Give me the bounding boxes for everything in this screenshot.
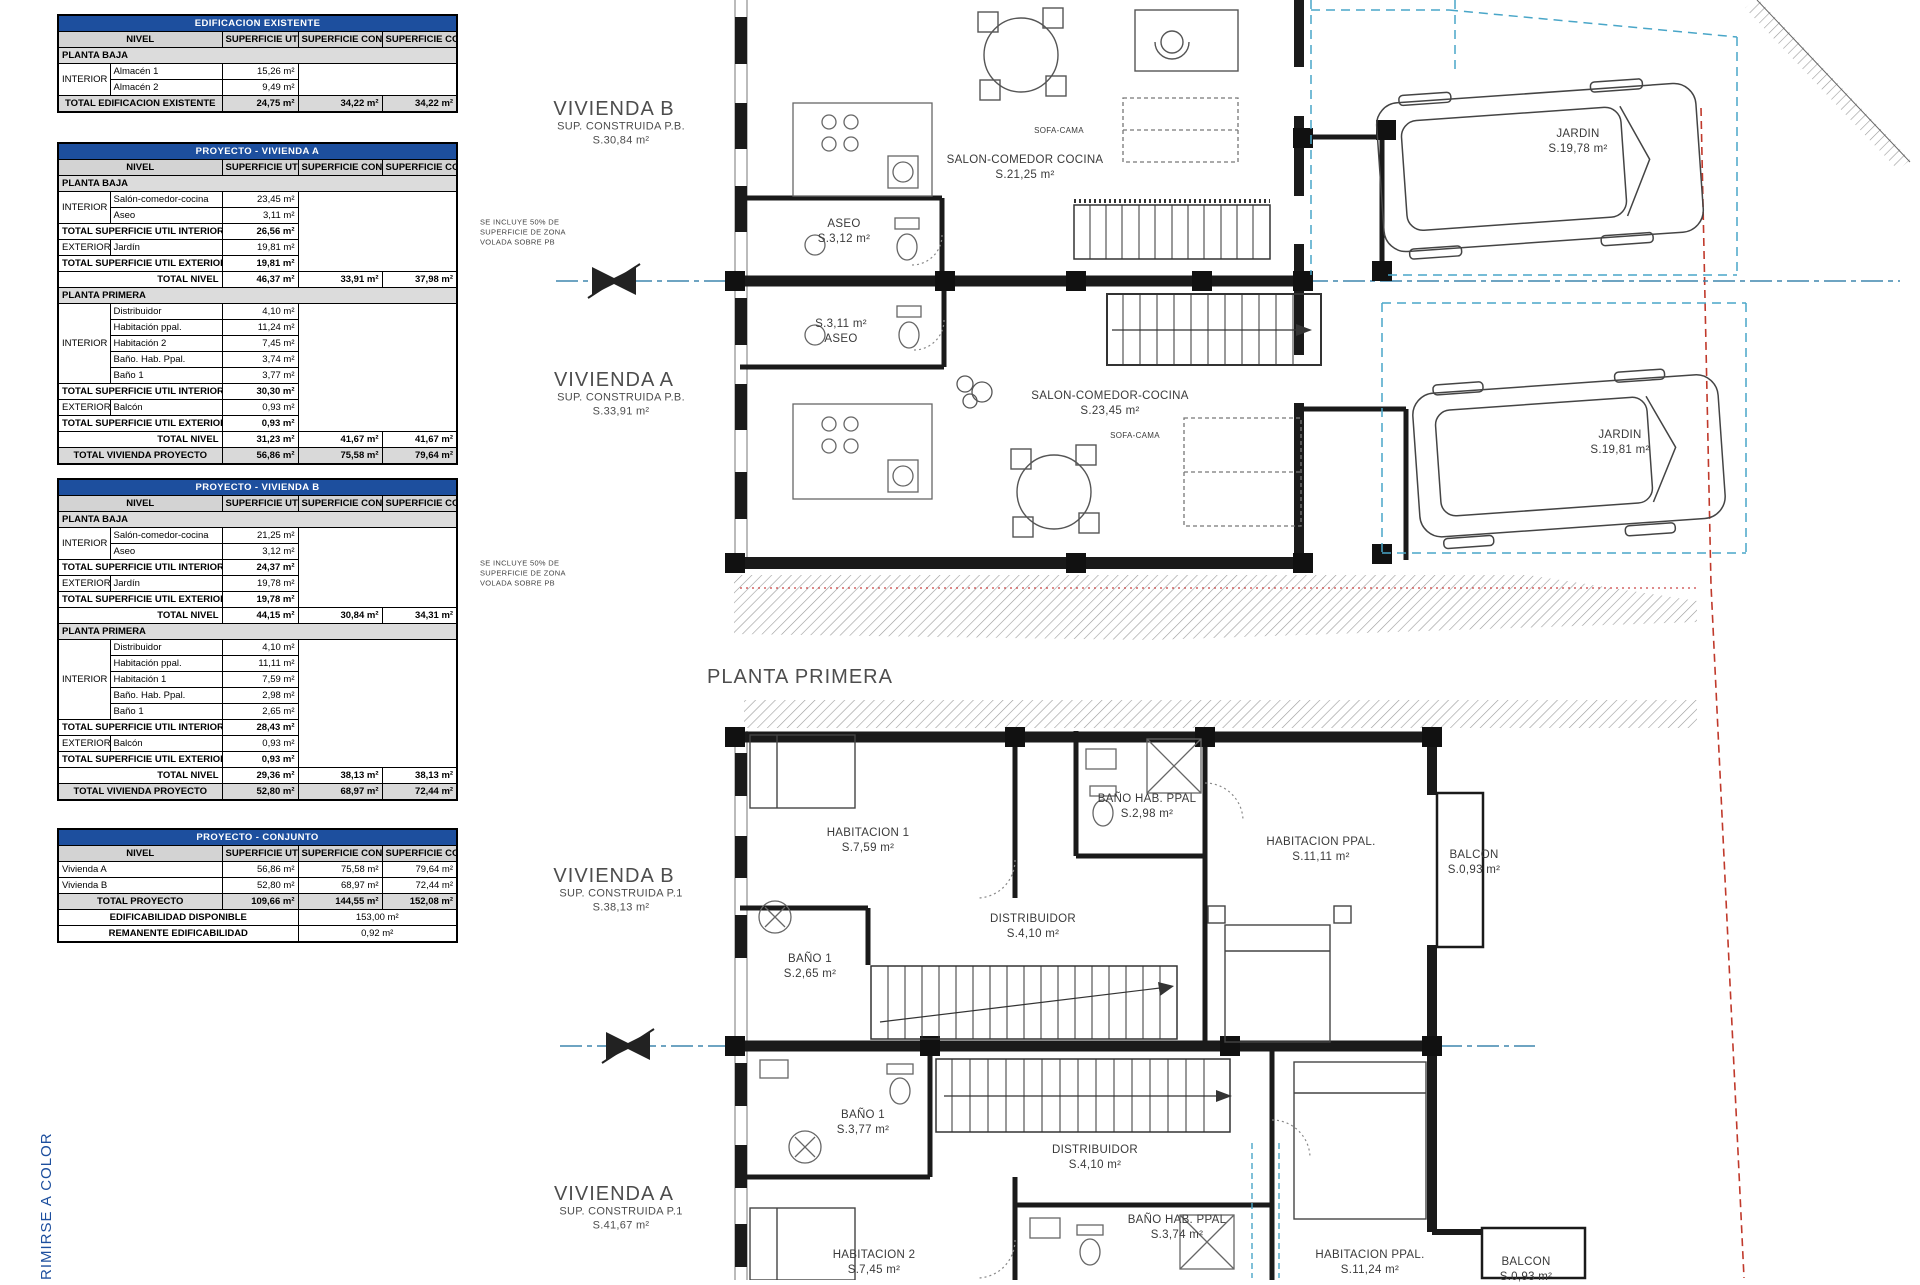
bed-icon [750,735,1426,1280]
section-cut-icon [588,264,640,298]
table-cell: TOTAL VIVIENDA PROYECTO [58,784,222,801]
kitchen-counter-icon [793,103,932,499]
table-cell: Vivienda A [58,862,222,878]
table-cell: TOTAL EDIFICACION EXISTENTE [58,96,222,113]
table-cell: 72,44 m² [382,878,457,894]
print-color-note: RIMIRSE A COLOR [38,1095,55,1280]
table-cell: 15,26 m² [222,64,298,80]
table-cell: TOTAL SUPERFICIE UTIL EXTERIOR [58,752,222,768]
table-cell: 29,36 m² [222,768,298,784]
section-cut-icon [602,1029,654,1063]
table-cell: EXTERIOR [58,240,110,256]
table-cell: Salón-comedor-cocina [110,528,222,544]
table-cell: Baño. Hab. Ppal. [110,688,222,704]
table-cell: 19,78 m² [222,592,298,608]
table-cell: Jardín [110,240,222,256]
table-cell: 4,10 m² [222,640,298,656]
table-cell: INTERIOR [58,304,110,384]
desk-icon [1135,10,1238,71]
table-cell: 4,10 m² [222,304,298,320]
table-cell: PLANTA BAJA [58,48,457,64]
table-cell: 21,25 m² [222,528,298,544]
table-cell: Baño 1 [110,368,222,384]
table-cell: Vivienda B [58,878,222,894]
table-cell: SUPERFICIE UTIL [222,32,298,48]
table-cell: 37,98 m² [382,272,457,288]
table-cell: 152,08 m² [382,894,457,910]
table-cell: TOTAL SUPERFICIE UTIL INTERIOR [58,384,222,400]
table-cell: 56,86 m² [222,862,298,878]
table-cell: TOTAL SUPERFICIE UTIL EXTERIOR [58,256,222,272]
table-cell: TOTAL NIVEL [58,768,222,784]
table-cell: 153,00 m² [298,910,457,926]
table-cell: TOTAL VIVIENDA PROYECTO [58,448,222,465]
person-icon [1155,31,1189,59]
table-cell: SUPERFICIE CONSTRUIDA [298,846,382,862]
table-cell: Almacén 2 [110,80,222,96]
table-cell: TOTAL NIVEL [58,608,222,624]
table-cell: SUPERFICIE UTIL [222,160,298,176]
table-cell: 2,98 m² [222,688,298,704]
table-cell: 23,45 m² [222,192,298,208]
table-cell: 30,84 m² [298,608,382,624]
table-cell: Balcón [110,736,222,752]
table-cell: TOTAL PROYECTO [58,894,222,910]
table-cell: SUPERFICIE CONSTRUIDA [298,32,382,48]
table-cell: PLANTA PRIMERA [58,624,457,640]
table-edificacion-existente: EDIFICACION EXISTENTENIVELSUPERFICIE UTI… [57,14,458,113]
table-cell: NIVEL [58,496,222,512]
table-cell: 0,92 m² [298,926,457,943]
plant-icon [957,376,992,408]
toilet-icon [760,749,1116,1265]
table-cell: 56,86 m² [222,448,298,465]
table-cell: 26,56 m² [222,224,298,240]
table-cell: 24,37 m² [222,560,298,576]
table-cell: 34,31 m² [382,608,457,624]
table-cell: 38,13 m² [382,768,457,784]
table-cell: REMANENTE EDIFICABILIDAD [58,926,298,943]
table-proyecto-conjunto: PROYECTO - CONJUNTONIVELSUPERFICIE UTILS… [57,828,458,943]
table-cell: 79,64 m² [382,862,457,878]
planta-primera-plan [725,727,1585,1280]
table-cell: INTERIOR [58,64,110,96]
table-cell: TOTAL NIVEL [58,272,222,288]
table-cell: 68,97 m² [298,878,382,894]
table-cell: TOTAL SUPERFICIE UTIL INTERIOR [58,720,222,736]
table-cell: Distribuidor [110,304,222,320]
table-proyecto-vivienda-b: PROYECTO - VIVIENDA BNIVELSUPERFICIE UTI… [57,478,458,801]
table-cell: SUPERFICIE CONSTRUIDA [298,160,382,176]
table-cell: 2,65 m² [222,704,298,720]
table-cell: 41,67 m² [382,432,457,448]
table-cell: PROYECTO - VIVIENDA A [58,143,457,160]
table-cell [298,64,457,96]
table-cell: 44,15 m² [222,608,298,624]
table-cell: 79,64 m² [382,448,457,465]
table-cell: 52,80 m² [222,784,298,801]
table-cell: 109,66 m² [222,894,298,910]
table-cell: TOTAL SUPERFICIE UTIL EXTERIOR [58,592,222,608]
section-cut-lines [556,281,1900,1046]
table-cell: 41,67 m² [298,432,382,448]
table-cell: INTERIOR [58,528,110,560]
table-cell: Distribuidor [110,640,222,656]
table-cell: PLANTA BAJA [58,176,457,192]
table-cell: 11,24 m² [222,320,298,336]
table-cell: EXTERIOR [58,736,110,752]
table-cell: EXTERIOR [58,400,110,416]
table-cell: 3,12 m² [222,544,298,560]
table-cell: Habitación 1 [110,672,222,688]
table-cell: EDIFICABILIDAD DISPONIBLE [58,910,298,926]
table-cell: NIVEL [58,846,222,862]
area-table: PROYECTO - VIVIENDA ANIVELSUPERFICIE UTI… [57,142,458,465]
table-cell: 3,11 m² [222,208,298,224]
table-cell: NIVEL [58,160,222,176]
table-cell: 144,55 m² [298,894,382,910]
table-cell: EDIFICACION EXISTENTE [58,15,457,32]
table-cell: 34,22 m² [298,96,382,113]
table-cell: 0,93 m² [222,752,298,768]
table-cell: 24,75 m² [222,96,298,113]
table-cell: 68,97 m² [298,784,382,801]
table-cell: Aseo [110,544,222,560]
table-cell: INTERIOR [58,640,110,720]
car-icon [1411,365,1728,550]
table-cell: 34,22 m² [382,96,457,113]
table-cell: SUPERFICIE UTIL [222,496,298,512]
table-cell: 75,58 m² [298,448,382,465]
table-cell: 19,78 m² [222,576,298,592]
table-cell: 0,93 m² [222,400,298,416]
table-cell: SUPERFICIE COMPUTABLE [382,160,457,176]
table-cell [298,640,457,768]
table-cell: 7,45 m² [222,336,298,352]
table-cell: 46,37 m² [222,272,298,288]
table-cell: 19,81 m² [222,256,298,272]
table-cell: Salón-comedor-cocina [110,192,222,208]
table-cell: 75,58 m² [298,862,382,878]
table-cell: PROYECTO - CONJUNTO [58,829,457,846]
table-cell: SUPERFICIE COMPUTABLE [382,32,457,48]
table-cell: Jardín [110,576,222,592]
car-icon [1375,75,1706,261]
table-cell: TOTAL NIVEL [58,432,222,448]
table-cell: 7,59 m² [222,672,298,688]
table-proyecto-vivienda-a: PROYECTO - VIVIENDA ANIVELSUPERFICIE UTI… [57,142,458,465]
table-cell [298,304,457,432]
table-cell: 3,77 m² [222,368,298,384]
table-cell [298,528,457,608]
table-cell: INTERIOR [58,192,110,224]
table-cell: Baño. Hab. Ppal. [110,352,222,368]
table-cell: TOTAL SUPERFICIE UTIL INTERIOR [58,224,222,240]
table-cell: TOTAL SUPERFICIE UTIL EXTERIOR [58,416,222,432]
table-cell: PROYECTO - VIVIENDA B [58,479,457,496]
table-cell: 3,74 m² [222,352,298,368]
sofa-bed-outline [1123,98,1301,526]
table-cell: 31,23 m² [222,432,298,448]
area-table: PROYECTO - VIVIENDA BNIVELSUPERFICIE UTI… [57,478,458,801]
area-table: EDIFICACION EXISTENTENIVELSUPERFICIE UTI… [57,14,458,113]
table-cell: 52,80 m² [222,878,298,894]
table-cell: Baño 1 [110,704,222,720]
table-cell: SUPERFICIE COMPUTABLE [382,846,457,862]
table-cell: SUPERFICIE COMPUTABLE [382,496,457,512]
table-cell: Habitación ppal. [110,320,222,336]
table-cell: Habitación 2 [110,336,222,352]
table-cell: 33,91 m² [298,272,382,288]
table-cell: Almacén 1 [110,64,222,80]
table-cell [298,192,457,272]
architectural-plan-page: { "document": { "side_note": "RIMIRSE A … [0,0,1920,1280]
area-table: PROYECTO - CONJUNTONIVELSUPERFICIE UTILS… [57,828,458,943]
table-cell: PLANTA PRIMERA [58,288,457,304]
table-cell: 30,30 m² [222,384,298,400]
overhang-dashed-lines [1252,1143,1279,1278]
table-cell: EXTERIOR [58,576,110,592]
table-cell: 0,93 m² [222,416,298,432]
table-cell: TOTAL SUPERFICIE UTIL INTERIOR [58,560,222,576]
table-cell: PLANTA BAJA [58,512,457,528]
table-cell: Aseo [110,208,222,224]
table-cell: 19,81 m² [222,240,298,256]
table-cell: 0,93 m² [222,736,298,752]
table-cell: SUPERFICIE UTIL [222,846,298,862]
table-cell: 72,44 m² [382,784,457,801]
table-cell: 28,43 m² [222,720,298,736]
table-cell: 38,13 m² [298,768,382,784]
table-cell: 11,11 m² [222,656,298,672]
table-cell: Habitación ppal. [110,656,222,672]
table-cell: NIVEL [58,32,222,48]
table-cell: Balcón [110,400,222,416]
table-cell: SUPERFICIE CONSTRUIDA [298,496,382,512]
shower-icon [759,739,1234,1269]
table-cell: 9,49 m² [222,80,298,96]
